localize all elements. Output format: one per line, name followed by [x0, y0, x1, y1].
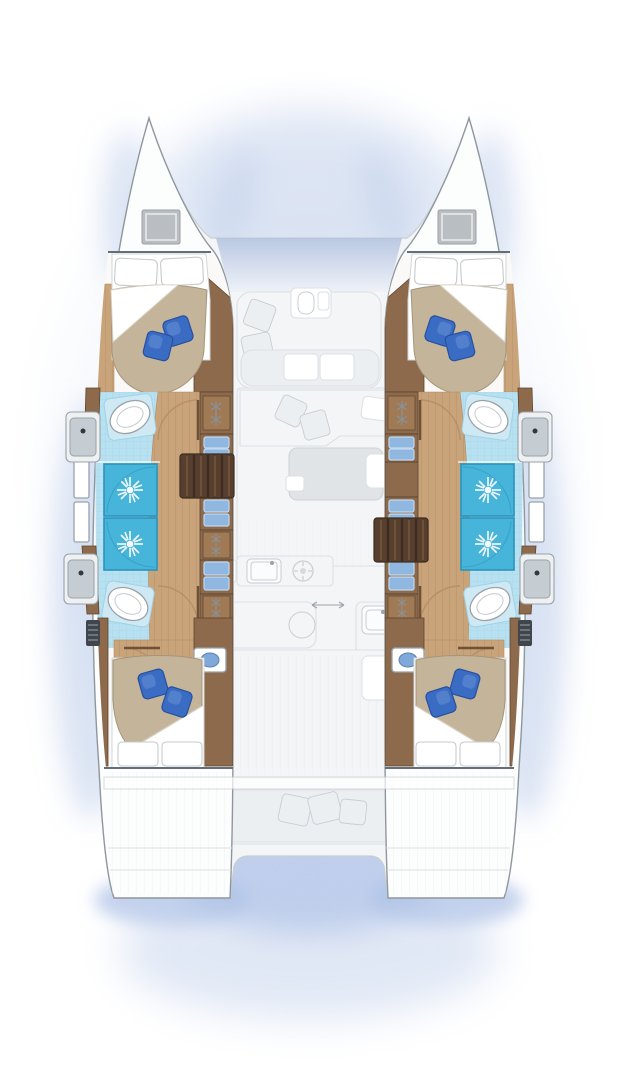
drawer-blue — [204, 577, 229, 590]
transom-deck-planks — [106, 772, 232, 894]
forward-deck — [216, 238, 402, 292]
wardrobe-column — [200, 392, 233, 648]
catamaran-floor-plan — [0, 0, 618, 1080]
bow-hatch — [142, 210, 180, 244]
bathroom-sink — [64, 554, 98, 604]
drawer-blue — [204, 437, 229, 448]
drawer-blue — [204, 562, 229, 575]
forward-cockpit-ghost — [237, 288, 381, 388]
bed-pillow-white — [114, 258, 157, 287]
bench-cushion — [284, 354, 318, 380]
bathroom — [94, 392, 200, 648]
stove-burner — [293, 561, 313, 581]
bench-cushion — [320, 354, 354, 380]
bed-pillow-white — [160, 257, 203, 286]
hull-window — [74, 458, 89, 498]
companionway-stairs-port — [180, 454, 234, 498]
vent-grill — [86, 620, 100, 646]
bed-pillow-white — [118, 742, 158, 766]
floor-plan-image — [0, 0, 618, 1080]
aft-cabin — [94, 618, 233, 768]
faucet-dot — [270, 561, 274, 565]
bed-pillow-white — [162, 742, 202, 766]
aft-beam — [104, 777, 514, 789]
hull-window — [74, 502, 89, 542]
bench-cushion — [339, 799, 367, 826]
stern-wash — [119, 880, 499, 1020]
bench-cushion — [277, 793, 312, 827]
bed-pillow-blue — [142, 330, 174, 362]
island-unit — [222, 602, 316, 648]
hull-interior — [90, 250, 236, 772]
drawer-blue — [204, 500, 229, 512]
companionway-stairs-starboard — [374, 518, 428, 562]
bathroom-sink — [66, 412, 100, 462]
salon-stool — [286, 476, 304, 491]
drawer-blue — [204, 514, 229, 526]
